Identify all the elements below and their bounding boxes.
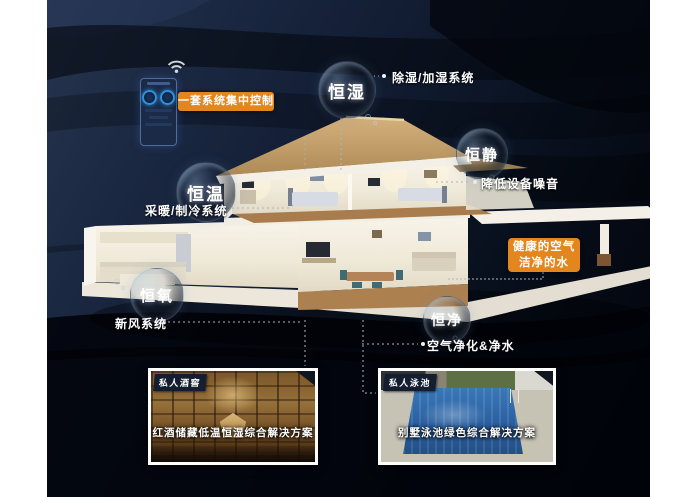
pool-badge: 私人泳池 [383, 374, 437, 391]
clean-water-line: 洁净的水 [508, 255, 580, 271]
wine-cellar-photo: 私人酒窖 红酒储藏低温恒湿综合解决方案 [151, 371, 315, 462]
panel-knob-left [142, 90, 157, 105]
panel-knob-right [160, 90, 175, 105]
annotation-heating-cooling-system: 采暖/制冷系统 [145, 202, 227, 219]
wine-cellar-floor-shadow [151, 446, 315, 462]
central-control-callout: 一套系统集中控制 [178, 92, 274, 111]
bubble-label: 恒湿 [328, 78, 366, 103]
feature-bubble-constant-humidity: 恒湿 [318, 61, 376, 119]
pool-caption: 别墅泳池绿色综合解决方案 [381, 425, 553, 440]
wine-cellar-inset: 私人酒窖 红酒储藏低温恒湿综合解决方案 [148, 368, 318, 465]
annotation-fresh-air-system: 新风系统 [115, 315, 167, 332]
pool-ladder [510, 389, 519, 403]
healthy-air-line: 健康的空气 [508, 239, 580, 255]
panel-button-row [149, 116, 168, 119]
bubble-label: 恒净 [431, 310, 463, 330]
bubble-label: 恒氧 [140, 285, 174, 306]
panel-button-row [145, 109, 172, 112]
bubble-label: 恒静 [465, 144, 499, 165]
bubble-label: 恒温 [187, 180, 225, 205]
annotation-air-water-purification: 空气净化&净水 [427, 337, 515, 354]
panel-button-row [145, 123, 172, 126]
pool-water [403, 388, 523, 454]
pool-inset: 私人泳池 别墅泳池绿色综合解决方案 [378, 368, 556, 465]
annotation-noise-reduction: 降低设备噪音 [481, 175, 559, 192]
feature-bubble-constant-oxygen: 恒氧 [130, 268, 184, 322]
left-page-margin [0, 0, 47, 497]
smart-control-panel [140, 78, 177, 146]
infographic-canvas: 一套系统集中控制 健康的空气 洁净的水 恒湿 恒静 恒温 恒氧 恒净 除湿/加湿… [0, 0, 700, 497]
panel-knobs [141, 90, 176, 105]
wine-cellar-badge: 私人酒窖 [153, 374, 207, 391]
wifi-icon [167, 59, 186, 74]
healthy-air-water-callout: 健康的空气 洁净的水 [508, 238, 580, 272]
right-page-margin [650, 0, 700, 497]
pool-photo: 私人泳池 别墅泳池绿色综合解决方案 [381, 371, 553, 462]
annotation-dehumidify-system: 除湿/加湿系统 [392, 69, 474, 86]
wine-cellar-light-glow [205, 376, 261, 414]
panel-screen-title-bar [147, 82, 170, 85]
wine-cellar-caption: 红酒储藏低温恒湿综合解决方案 [151, 425, 315, 440]
feature-bubble-constant-quiet: 恒静 [456, 128, 508, 180]
